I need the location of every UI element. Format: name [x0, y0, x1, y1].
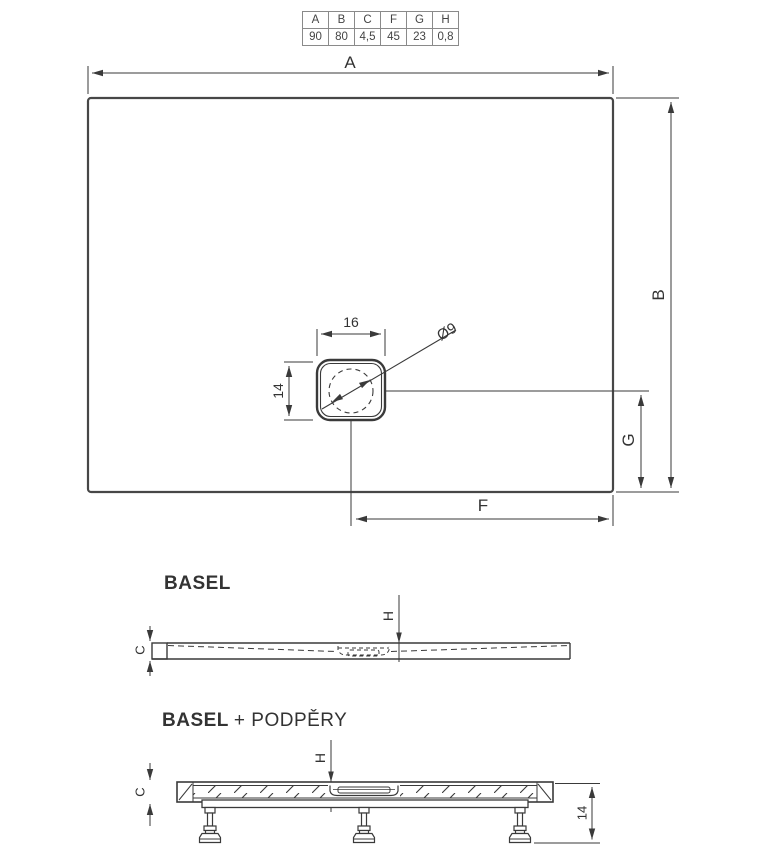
label-dim-b: B — [649, 289, 669, 300]
technical-drawing-page: A B C F G H 90 80 4,5 45 23 0,8 — [0, 0, 759, 868]
label-dim-a: A — [344, 53, 355, 73]
side-view-title: BASEL — [164, 573, 231, 595]
support-view-title: BASEL+ PODPĚRY — [162, 710, 347, 732]
side-view — [150, 595, 570, 676]
support-leg-left — [200, 808, 221, 843]
support-title-brand: BASEL — [162, 710, 229, 731]
plan-view — [88, 66, 679, 526]
label-drain-depth: 14 — [270, 383, 286, 399]
label-drain-width: 16 — [343, 314, 359, 330]
label-support-leg-height: 14 — [575, 806, 590, 820]
support-leg-right — [510, 808, 531, 843]
drawing-linework — [0, 0, 759, 868]
label-side-h: H — [380, 611, 396, 621]
support-leg-middle — [354, 808, 375, 843]
side-tray-profile — [152, 643, 570, 659]
support-view — [150, 740, 600, 843]
support-drain-recess — [328, 785, 400, 798]
label-support-c: C — [133, 787, 148, 796]
support-frame-bar — [202, 800, 528, 808]
side-drain-trap — [338, 646, 389, 656]
label-dim-g: G — [619, 433, 639, 446]
support-title-suffix: + PODPĚRY — [234, 710, 347, 731]
side-dim-h — [396, 595, 402, 662]
label-side-c: C — [133, 645, 148, 654]
label-dim-f: F — [478, 496, 488, 516]
label-support-h: H — [312, 753, 328, 763]
